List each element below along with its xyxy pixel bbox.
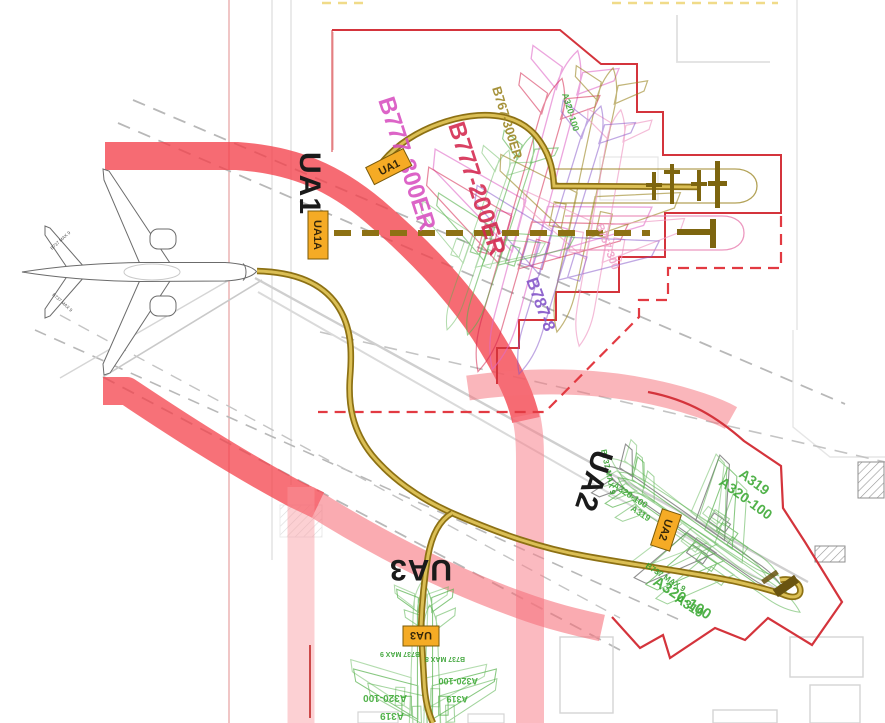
building-footprint bbox=[713, 710, 777, 723]
swept-band-ua1-lower bbox=[526, 415, 530, 723]
background-cad-lines bbox=[35, 0, 885, 723]
clearance-dashed-line bbox=[320, 332, 885, 462]
building-outline bbox=[793, 330, 885, 457]
ua2-boundary-solid bbox=[612, 392, 842, 658]
building-footprint bbox=[468, 714, 504, 723]
label-a319-ua3-left: A319 bbox=[380, 710, 404, 721]
label-b737max8-ua3: B737 MAX 8 bbox=[425, 655, 465, 662]
hatched-structure bbox=[815, 546, 845, 562]
airport-stand-plan-canvas: B737 MAX 9 B737 MAX 9 bbox=[0, 0, 885, 723]
wing-lower bbox=[103, 280, 170, 375]
stand-plan-drawing: B737 MAX 9 B737 MAX 9 bbox=[0, 0, 885, 723]
label-b737max9-ua3: B737 MAX 9 bbox=[380, 650, 420, 657]
building-footprint bbox=[810, 685, 860, 723]
ua2-stand-box: UA2 bbox=[651, 509, 682, 551]
wing-upper bbox=[103, 169, 170, 264]
building-outline bbox=[677, 15, 770, 62]
towed-aircraft-plan: B737 MAX 9 B737 MAX 9 bbox=[22, 169, 257, 375]
building-footprint bbox=[790, 637, 863, 677]
ua3-big-label: UA3 bbox=[389, 553, 452, 586]
engine-upper bbox=[150, 229, 176, 249]
label-a320-ua3-left: A320-100 bbox=[363, 692, 407, 703]
label-a319-ua3-right: A319 bbox=[446, 694, 468, 704]
ua1a-stand-box-label: UA1A bbox=[311, 220, 323, 250]
ua3-stand-box: UA3 bbox=[403, 626, 439, 646]
ua2-big-label: UA2 bbox=[568, 446, 619, 516]
engine-lower bbox=[150, 296, 176, 316]
hatched-structure bbox=[858, 462, 884, 498]
building-footprint bbox=[560, 637, 613, 713]
ua2-aircraft-cluster bbox=[562, 405, 841, 671]
ua1-big-label: UA1 bbox=[293, 152, 326, 215]
stabilizer-lower bbox=[45, 275, 85, 318]
label-a320-ua3-right: A320-100 bbox=[438, 676, 478, 686]
ua3-stand-box-label: UA3 bbox=[410, 629, 432, 641]
ua1a-stand-box: UA1A bbox=[308, 211, 328, 259]
